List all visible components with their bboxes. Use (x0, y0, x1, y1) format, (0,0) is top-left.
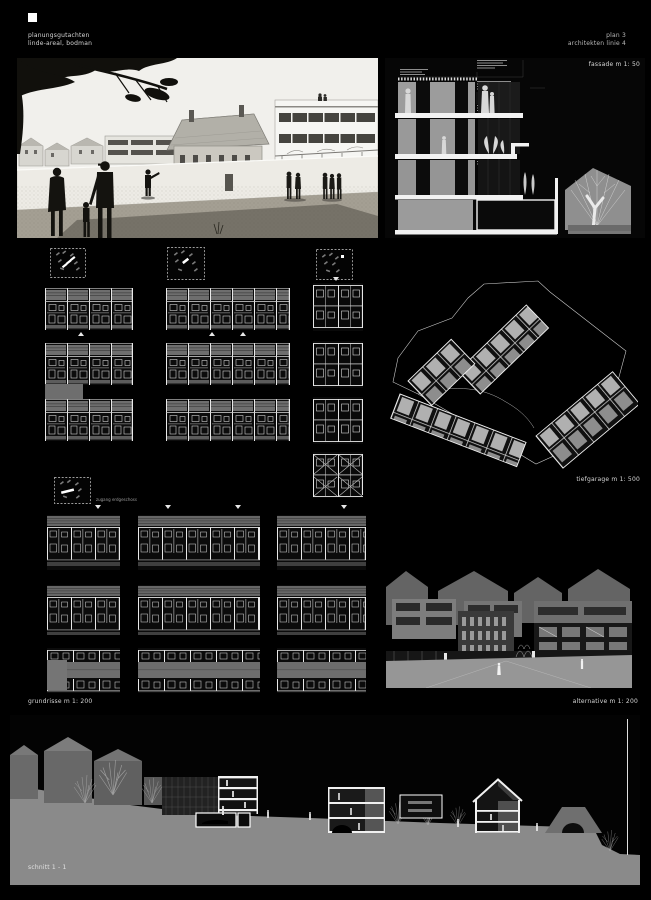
floor-plan-strip (45, 343, 133, 385)
long-plan-row (277, 515, 366, 570)
long-plan-row (138, 515, 260, 570)
floor-plan-strip (45, 399, 133, 441)
garage-strip (391, 305, 638, 468)
floor-plan-strip (166, 343, 290, 385)
alternative-label: alternative m 1: 200 (573, 698, 638, 706)
section-marker-line (627, 719, 628, 855)
key-plan-2 (167, 247, 205, 280)
marker-arrow-icon (209, 332, 215, 336)
tiefgarage-label: tiefgarage m 1: 500 (576, 476, 640, 484)
marker-arrow-icon (165, 505, 171, 509)
long-plan-row (277, 585, 366, 635)
marker-arrow-icon (78, 332, 84, 336)
header-plan: plan 3architekten linie 4 (568, 32, 626, 47)
floor-plan-strip (166, 399, 290, 441)
perspective-rendering (17, 58, 378, 238)
long-plan-row (47, 515, 120, 570)
floor-plan-strip (166, 288, 290, 330)
presentation-board: { "header": { "project_line1": "planungs… (0, 0, 651, 900)
page-marker-icon (28, 13, 37, 22)
marker-arrow-icon (240, 332, 246, 336)
section-building-b (328, 787, 385, 833)
plan-note: zugang erdgeschoss (96, 498, 137, 503)
marker-arrow-icon (341, 505, 347, 509)
key-plan-3 (316, 249, 353, 280)
long-plan-row (47, 648, 120, 693)
floor-plan-square (313, 397, 363, 444)
project-subtitle: linde-areal, bodman (28, 40, 92, 47)
floor-plan-square (313, 341, 363, 388)
key-plan-4 (54, 477, 91, 504)
long-plan-row (277, 648, 366, 693)
long-plan-row (138, 648, 260, 693)
grundrisse-label: grundrisse m 1: 200 (28, 698, 92, 706)
garage-site-plan (388, 276, 638, 474)
alternative-elevation (386, 563, 632, 688)
section-sign-box (400, 795, 442, 818)
facade-section-drawing (385, 58, 645, 238)
schnitt-label: schnitt 1 - 1 (28, 864, 67, 872)
marker-arrow-icon (235, 505, 241, 509)
marker-arrow-icon (333, 277, 339, 281)
fassade-label: fassade m 1: 50 (589, 61, 640, 69)
site-section (10, 715, 640, 887)
highlight-block (45, 384, 83, 400)
attic-plan-square (313, 452, 363, 498)
marker-arrow-icon (95, 505, 101, 509)
long-plan-row (138, 585, 260, 635)
floor-plan-square (313, 283, 363, 331)
key-plan-1 (50, 248, 86, 278)
long-plan-row (47, 585, 120, 635)
project-title: planungsgutachten (28, 32, 89, 39)
header-project: planungsgutachtenlinde-areal, bodman (28, 32, 92, 47)
floor-plan-strip (45, 288, 133, 330)
architect-name: architekten linie 4 (568, 40, 626, 47)
plan-number: plan 3 (606, 32, 626, 39)
